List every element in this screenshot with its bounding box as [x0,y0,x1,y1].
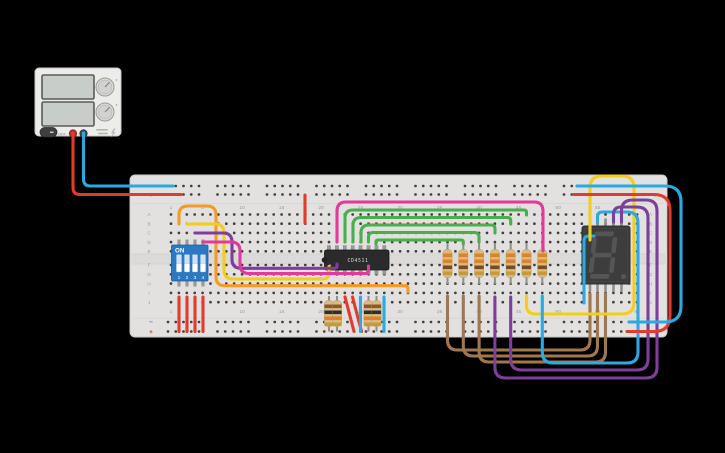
row-letter: J [649,300,651,305]
row-letter: F [148,263,151,268]
column-label: 55 [595,205,601,211]
ic-notch [322,257,328,263]
row-letter: I [148,291,149,296]
column-label: 50 [555,205,561,211]
display-segment [592,253,611,258]
psu-power-button[interactable] [40,128,57,138]
dip-switch[interactable]: ON 1 2 3 4 [172,240,209,287]
row-letter: H [147,281,150,286]
column-label: 10 [239,309,245,315]
column-label: 35 [437,309,443,315]
dip-number-2: 2 [186,275,189,281]
column-label: 15 [279,309,285,315]
ic-label: CD4511 [348,258,369,264]
display-segment [590,274,609,279]
rail-plus-mark: + [149,329,153,336]
resistor-10k-4[interactable] [372,296,381,332]
dip-number-1: 1 [178,275,181,281]
column-label: 10 [239,205,245,211]
dip-number-4: 4 [202,275,205,281]
column-label: 20 [318,205,324,211]
column-label: 1 [170,309,173,315]
psu-fine-print [98,133,108,135]
ic-cd4511[interactable]: CD4511 [322,246,389,275]
column-label: 45 [516,309,522,315]
row-letter: J [148,300,150,305]
psu-knob-dot [116,79,118,81]
display-segment [594,232,613,237]
display-decimal-point [621,274,626,279]
dip-on-label: ON [175,248,185,255]
row-letter: E [147,249,150,254]
circuit-canvas: 1155101015152020252530303535404045455050… [0,0,725,453]
column-label: 30 [397,309,403,315]
psu-knob-dot [116,104,118,106]
power-supply[interactable]: OFF [35,68,121,138]
row-letter: B [147,221,150,226]
row-letter: I [650,291,651,296]
dip-number-3: 3 [194,275,197,281]
rail-minus-mark: − [149,319,153,326]
psu-screen [42,102,94,126]
row-letter: G [147,272,151,277]
psu-screen [42,75,94,99]
psu-fine-print [96,129,108,131]
column-label: 1 [170,205,173,211]
dip-slider-knob-1[interactable] [176,264,181,273]
resistor-10k-2[interactable] [332,296,341,332]
dip-slider-knob-3[interactable] [192,264,197,273]
dip-slider-knob-4[interactable] [200,264,205,273]
column-label: 15 [279,205,285,211]
dip-slider-knob-2[interactable] [184,264,189,273]
psu-off-label: OFF [58,132,67,137]
column-label: 20 [318,309,324,315]
